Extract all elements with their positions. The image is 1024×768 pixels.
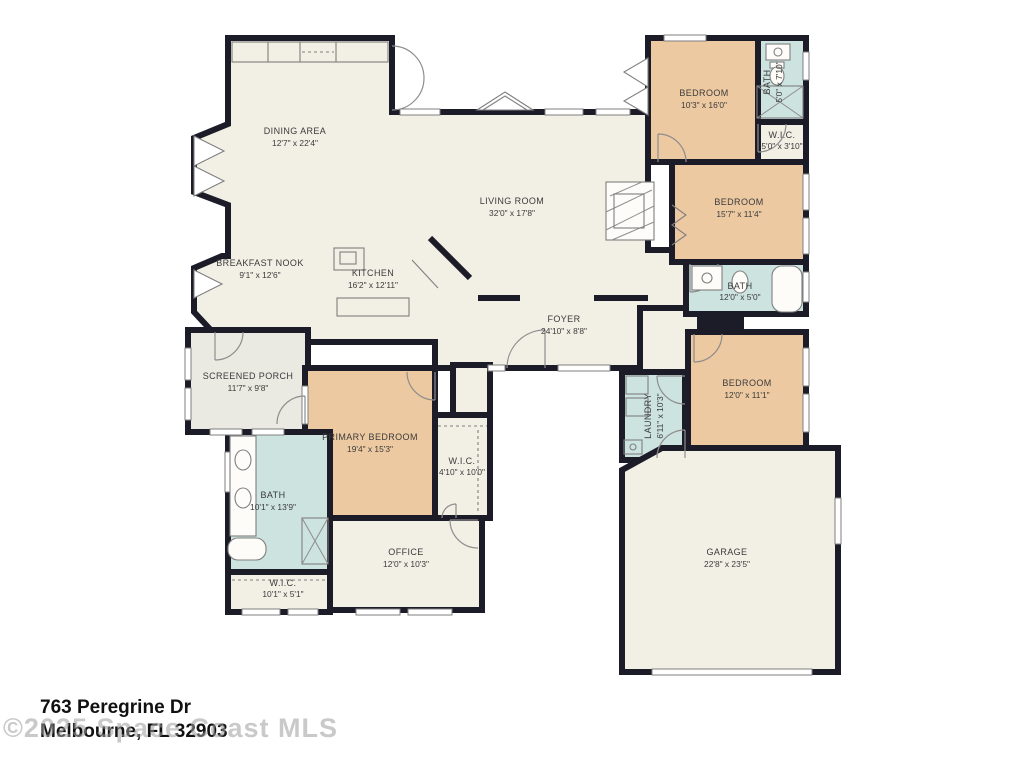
svg-text:24'10" x 8'8": 24'10" x 8'8": [541, 326, 587, 336]
svg-text:10'3" x 16'0": 10'3" x 16'0": [681, 100, 727, 110]
svg-text:BATH: BATH: [261, 490, 286, 500]
svg-text:10'1" x 13'9": 10'1" x 13'9": [250, 502, 296, 512]
door-dining-french-1: [392, 46, 424, 78]
door-dining-french-2: [392, 78, 424, 110]
svg-text:19'4" x 15'3": 19'4" x 15'3": [347, 444, 393, 454]
fireplace: [606, 182, 654, 240]
svg-text:FOYER: FOYER: [547, 314, 580, 324]
room-screened-porch: [188, 330, 308, 432]
svg-text:16'2" x 12'11": 16'2" x 12'11": [348, 280, 398, 290]
svg-text:32'0" x 17'8": 32'0" x 17'8": [489, 208, 535, 218]
svg-text:11'7" x 9'8": 11'7" x 9'8": [228, 383, 269, 393]
svg-text:22'8" x 23'5": 22'8" x 23'5": [704, 559, 750, 569]
bay-bedroom1-1: [624, 58, 648, 87]
svg-text:12'7" x 22'4": 12'7" x 22'4": [272, 138, 318, 148]
svg-text:BATH: BATH: [728, 281, 753, 291]
svg-text:6'11" x 10'3": 6'11" x 10'3": [655, 393, 665, 438]
svg-text:PRIMARY BEDROOM: PRIMARY BEDROOM: [322, 432, 418, 442]
svg-text:OFFICE: OFFICE: [388, 547, 423, 557]
hall-primary: [453, 365, 490, 418]
svg-text:DINING AREA: DINING AREA: [264, 126, 326, 136]
bay-living-top: [477, 92, 533, 110]
svg-text:SCREENED PORCH: SCREENED PORCH: [203, 371, 294, 381]
svg-text:BREAKFAST NOOK: BREAKFAST NOOK: [216, 258, 303, 268]
mls-watermark: ©2025 Space Coast MLS: [3, 713, 338, 744]
svg-text:BATH: BATH: [762, 70, 772, 95]
svg-text:BEDROOM: BEDROOM: [722, 378, 771, 388]
svg-text:10'1" x 5'1": 10'1" x 5'1": [262, 589, 303, 599]
svg-text:W.I.C.: W.I.C.: [449, 456, 476, 466]
svg-text:W.I.C.: W.I.C.: [769, 130, 796, 140]
svg-text:12'0" x 11'1": 12'0" x 11'1": [724, 390, 769, 400]
svg-text:15'7" x 11'4": 15'7" x 11'4": [716, 209, 761, 219]
svg-text:5'0" x 3'10": 5'0" x 3'10": [761, 141, 802, 151]
svg-text:LAUNDRY: LAUNDRY: [643, 393, 653, 439]
svg-text:BEDROOM: BEDROOM: [679, 88, 728, 98]
svg-text:4'10" x 10'0": 4'10" x 10'0": [439, 467, 485, 477]
svg-text:9'1" x 12'6": 9'1" x 12'6": [239, 270, 280, 280]
svg-text:12'0" x 10'3": 12'0" x 10'3": [383, 559, 429, 569]
svg-text:5'0" x 7'10": 5'0" x 7'10": [774, 61, 784, 102]
svg-text:BEDROOM: BEDROOM: [714, 197, 763, 207]
svg-text:W.I.C.: W.I.C.: [270, 578, 297, 588]
floor-plan: DINING AREA 12'7" x 22'4" LIVING ROOM 32…: [0, 0, 1024, 768]
svg-text:KITCHEN: KITCHEN: [352, 268, 394, 278]
svg-text:LIVING ROOM: LIVING ROOM: [480, 196, 544, 206]
svg-text:12'0" x 5'0": 12'0" x 5'0": [719, 292, 760, 302]
svg-text:GARAGE: GARAGE: [707, 547, 748, 557]
